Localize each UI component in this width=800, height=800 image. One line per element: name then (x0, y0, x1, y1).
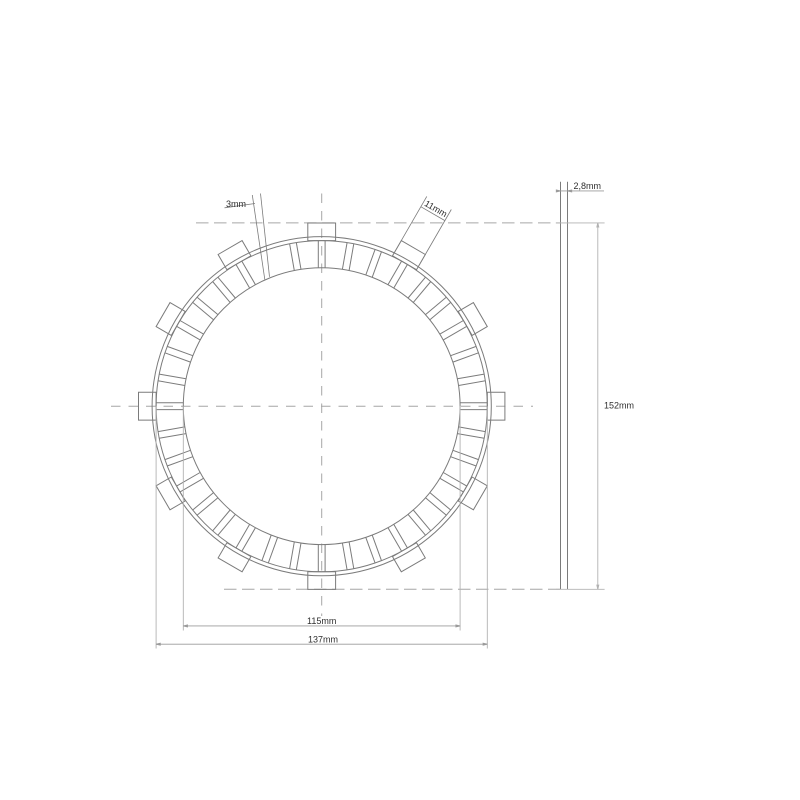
svg-text:137mm: 137mm (308, 635, 338, 645)
svg-text:3mm: 3mm (226, 199, 246, 209)
svg-text:115mm: 115mm (307, 616, 336, 626)
svg-text:11mm: 11mm (423, 198, 449, 219)
svg-text:2,8mm: 2,8mm (574, 181, 602, 191)
svg-text:152mm: 152mm (604, 401, 634, 411)
